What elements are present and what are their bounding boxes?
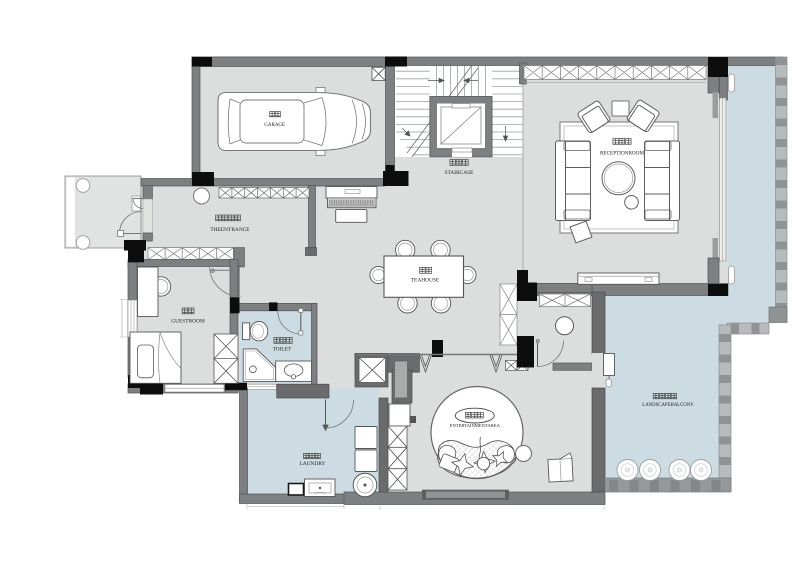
svg-text:THEENTRANCE: THEENTRANCE <box>210 227 250 233</box>
svg-text:GUESTROOM: GUESTROOM <box>171 319 205 325</box>
svg-text:ENTERTAINMENTAREA: ENTERTAINMENTAREA <box>450 423 501 428</box>
svg-text:TOILET: TOILET <box>273 347 292 353</box>
svg-text:RECEPTIONROOM: RECEPTIONROOM <box>600 151 644 157</box>
svg-text:LANDSCAPEBALCONY: LANDSCAPEBALCONY <box>642 403 694 408</box>
svg-text:STAIRCASE: STAIRCASE <box>445 170 475 176</box>
svg-text:TEAHOUSE: TEAHOUSE <box>411 278 440 284</box>
svg-text:LAUNDRY: LAUNDRY <box>299 461 325 467</box>
svg-text:GARAGE: GARAGE <box>264 123 285 128</box>
